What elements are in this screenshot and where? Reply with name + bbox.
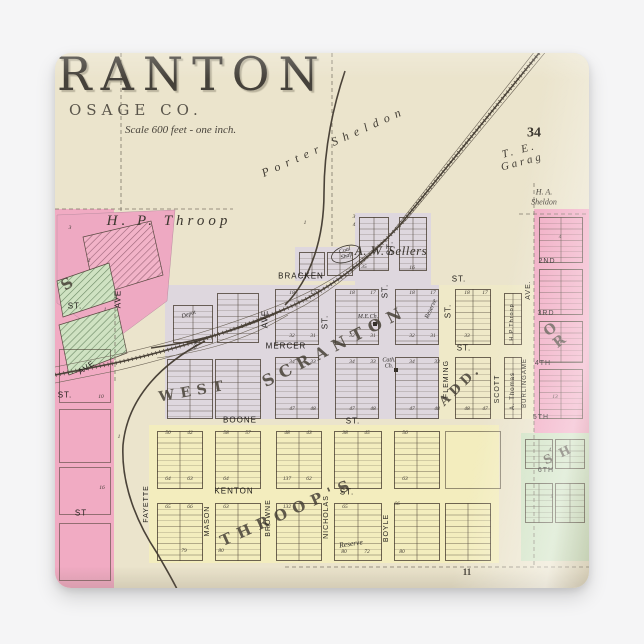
label-poi: Coal Shaft [338, 246, 354, 262]
label-section: 11 [463, 568, 472, 578]
label-number: 31 [430, 334, 436, 340]
label-street_h: ST. [58, 392, 73, 401]
label-number: 57 [245, 431, 251, 437]
label-poi: Depot [181, 310, 197, 321]
label-number: 48 [310, 407, 316, 413]
label-street_v: MASON [204, 506, 212, 537]
product-photo: { "map": { "title": "RANTON", "subtitle"… [0, 0, 644, 644]
label-street_v: FAYETTE [143, 485, 151, 523]
label-number: 80 [341, 550, 347, 556]
label-number: 34 [289, 360, 295, 366]
label-number: 42 [187, 431, 193, 437]
label-street_h: ST. [457, 345, 472, 354]
label-street_h: ST [75, 510, 87, 519]
label-railroad: Porter Sheldon [260, 104, 409, 180]
label-number: 16 [409, 266, 415, 272]
label-street_h: ST. [68, 303, 83, 312]
plat-map: H. P. ThroopA. W. SellersH. A.SheldonPor… [55, 53, 589, 588]
label-number: 80 [399, 550, 405, 556]
label-number: 2 [88, 259, 91, 265]
label-district: S H [542, 443, 575, 467]
label-number: 79 [181, 549, 187, 555]
label-number: 12 [557, 340, 563, 346]
label-street_v: BURLINGAME [522, 358, 528, 408]
label-number: 48 [284, 431, 290, 437]
map-county: OSAGE CO. [69, 101, 203, 119]
label-number: 47 [349, 407, 355, 413]
label-number: 33 [370, 360, 376, 366]
label-poi: Reserve [339, 538, 364, 549]
label-number: 66 [187, 505, 193, 511]
label-number: 32 [349, 334, 355, 340]
label-number: 17 [430, 291, 436, 297]
label-number: 13 [552, 395, 558, 401]
label-number: 132 [283, 505, 291, 511]
label-street_v: BOYLE [383, 514, 391, 542]
label-number: 48 [434, 407, 440, 413]
label-number: 17 [310, 291, 316, 297]
label-number: 43 [306, 431, 312, 437]
label-number: 18 [409, 291, 415, 297]
label-street_h: KENTON [214, 488, 253, 497]
label-number: 50 [165, 431, 171, 437]
label-number: 18 [349, 291, 355, 297]
label-landowner: H. P. Throop [107, 213, 232, 229]
label-number: 63 [223, 505, 229, 511]
label-street_v: NICHOLAS [323, 495, 331, 539]
label-number: 47 [482, 407, 488, 413]
label-number: 48 [464, 407, 470, 413]
label-number: 35 [361, 265, 367, 271]
label-street_v: BROWNE [265, 499, 273, 537]
label-number: 72 [364, 550, 370, 556]
label-number: 17 [370, 291, 376, 297]
label-landowner: H. A. [536, 189, 553, 198]
label-street_v: AVE [262, 310, 271, 328]
label-number: 17 [482, 291, 488, 297]
label-district: O R [535, 313, 579, 357]
label-section: 34 [527, 125, 541, 140]
label-number: 66 [394, 502, 400, 508]
label-street_v: H.P.Throop [510, 303, 516, 340]
label-number: 62 [306, 477, 312, 483]
label-number: 38 [342, 431, 348, 437]
label-street_v: ST. [382, 284, 391, 299]
label-number: 45 [364, 431, 370, 437]
label-number: 10 [98, 395, 104, 401]
label-street_v: ST. [445, 304, 454, 319]
label-number: 31 [310, 334, 316, 340]
label-number: 80 [218, 549, 224, 555]
label-number: 32 [289, 334, 295, 340]
label-number: 63 [187, 477, 193, 483]
label-street_h: 4TH [535, 360, 551, 368]
label-number: 64 [165, 477, 171, 483]
label-number: 47 [409, 407, 415, 413]
label-street_v: FLEMING [443, 360, 451, 398]
label-poi: Coal [193, 339, 198, 349]
label-number: 65 [342, 505, 348, 511]
label-street_h: BOONE [223, 417, 257, 426]
label-street_v: SCOTT [494, 375, 502, 404]
magnet: H. P. ThroopA. W. SellersH. A.SheldonPor… [55, 53, 589, 588]
label-street_h: 5TH [533, 414, 549, 422]
label-number: 1 [118, 435, 121, 441]
label-number: 47 [289, 407, 295, 413]
label-number: 16 [99, 486, 105, 492]
label-number: 137 [283, 477, 291, 483]
label-number: 3 [69, 226, 72, 232]
label-number: 33 [434, 360, 440, 366]
label-number: 31 [370, 334, 376, 340]
label-poi: Cath. Ch. [382, 358, 395, 371]
label-district: S [58, 274, 76, 293]
label-poi: M.E.Ch. [358, 314, 378, 320]
label-number: 1 [104, 308, 107, 314]
label-number: 64 [223, 477, 229, 483]
label-number: 34 [349, 360, 355, 366]
label-street_v: ST. [387, 241, 396, 256]
label-street_v: AVE. [525, 280, 533, 299]
label-number: 3 [353, 215, 356, 221]
label-street_v: ST. [322, 315, 331, 330]
label-number: 65 [165, 505, 171, 511]
label-number: 18 [464, 291, 470, 297]
label-street_h: MERCER [266, 343, 307, 352]
label-street_h: 3RD [537, 310, 554, 318]
label-street_v: A. Thomas [510, 372, 516, 410]
label-district: WEST [158, 378, 230, 405]
label-street_h: ST. [346, 418, 361, 427]
label-street_h: 2ND [538, 258, 555, 266]
label-number: 56 [402, 431, 408, 437]
label-street_h: ST. [452, 276, 467, 285]
label-number: 34 [409, 360, 415, 366]
label-number: 4 [549, 448, 552, 454]
label-street_v: AVE [115, 290, 124, 308]
label-number: 33 [464, 334, 470, 340]
label-number: 1 [304, 221, 307, 227]
map-title: RANTON [57, 53, 328, 101]
label-number: 63 [402, 477, 408, 483]
label-number: 18 [289, 291, 295, 297]
label-street_v: AVE [77, 359, 97, 377]
label-landowner: Sheldon [531, 199, 557, 208]
label-number: 58 [223, 431, 229, 437]
label-number: 48 [370, 407, 376, 413]
label-railroad: T. E. Garag [485, 137, 557, 178]
label-poi: Reserve [423, 298, 438, 320]
label-number: 33 [310, 360, 316, 366]
label-street_h: ST. [340, 489, 355, 498]
map-scale-note: Scale 600 feet - one inch. [125, 124, 236, 136]
label-number: 5 [551, 495, 554, 501]
label-street_h: BRACKEN [278, 273, 324, 282]
label-street_h: 6TH [538, 467, 554, 475]
label-number: 4 [559, 235, 562, 241]
label-number: 4 [353, 223, 356, 229]
label-number: 32 [409, 334, 415, 340]
